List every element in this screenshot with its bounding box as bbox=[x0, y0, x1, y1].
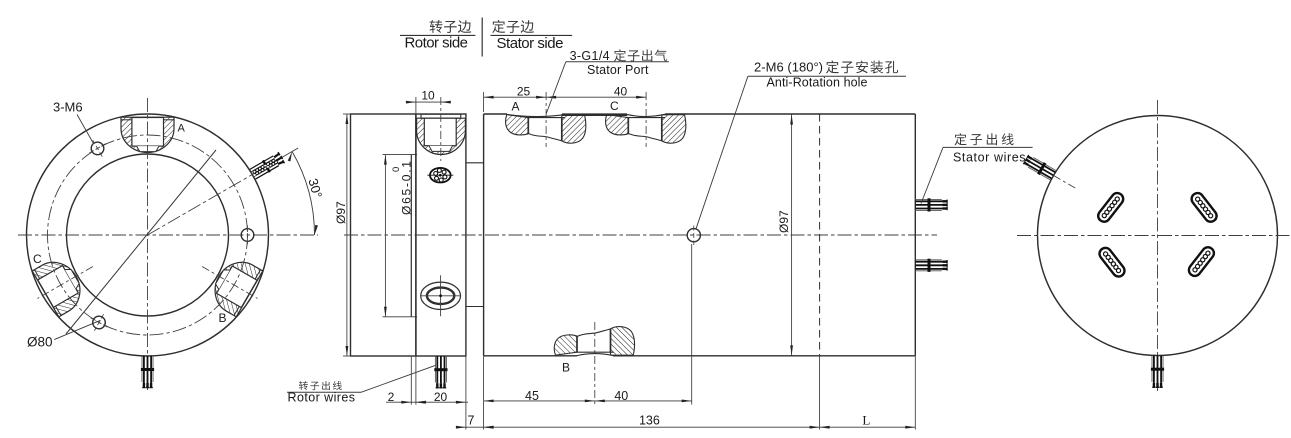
svg-text:Stator Port: Stator Port bbox=[587, 63, 649, 77]
svg-text:40: 40 bbox=[614, 84, 628, 98]
svg-text:20: 20 bbox=[434, 390, 448, 404]
svg-text:3-G1/4: 3-G1/4 bbox=[570, 49, 610, 63]
svg-text:136: 136 bbox=[639, 414, 660, 428]
svg-text:Stator wires: Stator wires bbox=[953, 150, 1026, 164]
svg-text:45: 45 bbox=[525, 389, 539, 403]
svg-text:7: 7 bbox=[468, 414, 475, 428]
svg-text:Ø97: Ø97 bbox=[777, 210, 791, 233]
svg-text:A: A bbox=[512, 100, 520, 114]
svg-text:B: B bbox=[219, 311, 227, 325]
svg-text:Ø97: Ø97 bbox=[334, 201, 348, 224]
svg-text:2-M6 (180°): 2-M6 (180°) bbox=[754, 60, 823, 75]
svg-text:10: 10 bbox=[421, 88, 435, 102]
svg-text:L: L bbox=[862, 413, 870, 428]
svg-text:3-M6: 3-M6 bbox=[53, 100, 83, 115]
svg-text:B: B bbox=[562, 361, 570, 375]
svg-text:C: C bbox=[610, 99, 619, 113]
svg-text:Rotor side: Rotor side bbox=[405, 34, 469, 51]
svg-text:Rotor wires: Rotor wires bbox=[288, 391, 356, 405]
svg-text:2: 2 bbox=[388, 390, 395, 404]
svg-text:Stator side: Stator side bbox=[497, 35, 564, 52]
svg-text:C: C bbox=[33, 252, 42, 266]
svg-text:40: 40 bbox=[614, 389, 628, 403]
svg-text:30°: 30° bbox=[305, 177, 325, 200]
svg-text:A: A bbox=[178, 123, 186, 135]
svg-text:Ø80: Ø80 bbox=[27, 335, 53, 350]
svg-text:25: 25 bbox=[517, 84, 531, 98]
svg-text:Anti-Rotation hole: Anti-Rotation hole bbox=[767, 76, 868, 90]
